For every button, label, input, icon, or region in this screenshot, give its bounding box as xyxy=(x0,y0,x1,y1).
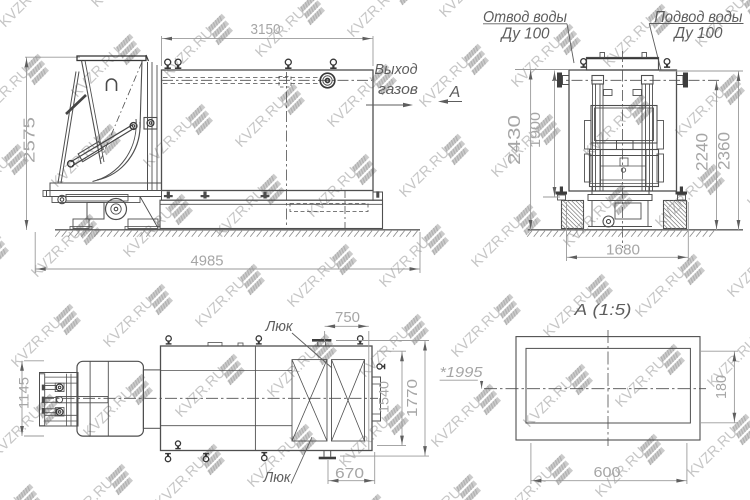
svg-text:Выход: Выход xyxy=(375,62,418,78)
svg-text:газов: газов xyxy=(378,82,418,98)
svg-text:А: А xyxy=(449,84,461,101)
svg-text:2240: 2240 xyxy=(694,133,712,171)
svg-text:600: 600 xyxy=(594,464,621,481)
svg-text:180: 180 xyxy=(713,375,730,399)
svg-text:750: 750 xyxy=(335,310,360,326)
svg-text:1770: 1770 xyxy=(404,379,421,417)
svg-text:2575: 2575 xyxy=(22,117,39,163)
svg-text:4985: 4985 xyxy=(191,253,224,270)
svg-text:2360: 2360 xyxy=(716,132,734,170)
svg-text:1900: 1900 xyxy=(527,112,544,148)
svg-text:1680: 1680 xyxy=(606,242,640,259)
svg-text:2430: 2430 xyxy=(504,115,524,165)
svg-text:670: 670 xyxy=(335,465,364,482)
svg-text:1540: 1540 xyxy=(376,381,392,413)
svg-text:3150: 3150 xyxy=(251,21,281,38)
svg-text:Ду 100: Ду 100 xyxy=(500,26,550,43)
svg-text:Люк: Люк xyxy=(263,469,292,486)
svg-text:Люк: Люк xyxy=(265,318,294,335)
svg-text:А (1:5): А (1:5) xyxy=(573,302,631,319)
svg-text:1145: 1145 xyxy=(16,377,32,409)
svg-text:*1995: *1995 xyxy=(440,365,484,381)
svg-text:Ду 100: Ду 100 xyxy=(672,25,722,42)
